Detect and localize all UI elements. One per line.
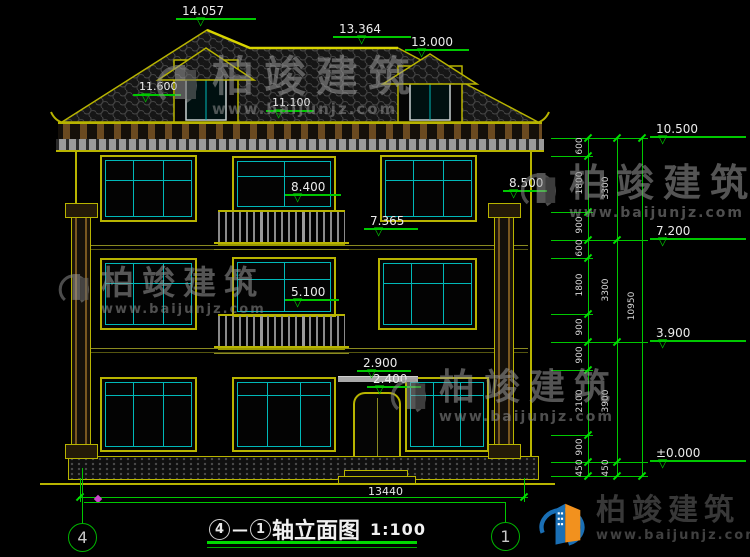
watermark-logo-icon	[520, 164, 564, 212]
window-3f-left	[100, 155, 197, 222]
axis-line-1	[505, 502, 506, 522]
watermark-lower-right: 柏竣建筑 www.baijunjz.com	[390, 370, 619, 424]
cornice-dentil-band	[56, 139, 544, 152]
balcony-railing-2f	[218, 314, 345, 350]
level-right-3900: 3.900 ▽	[650, 326, 746, 342]
dim-seg: 450	[574, 448, 586, 488]
dim-floor: 450	[600, 448, 612, 488]
level-ridge: 14.057 ▽	[176, 4, 256, 20]
balcony-railing-3f	[218, 210, 345, 246]
width-dim-text: 13440	[368, 485, 403, 498]
title-axis-start: 4	[209, 519, 230, 540]
window-1f-center	[232, 377, 336, 452]
level-right-7200: 7.200 ▽	[650, 224, 746, 240]
axis-line-4	[82, 468, 83, 523]
pilaster-left	[71, 216, 91, 446]
brand-logo-icon	[534, 496, 590, 548]
watermark-left: 柏竣建筑 www.baijunjz.com	[58, 266, 266, 316]
level-right-0000: ±0.000 ▽	[650, 446, 746, 462]
level-balcony3: 8.400 ▽	[285, 180, 341, 196]
title-underline-thick	[207, 541, 417, 544]
dim-seg: 600	[574, 126, 586, 166]
title-scale: 1:100	[370, 520, 426, 539]
ground-line	[40, 483, 555, 485]
pilaster-right-base	[488, 444, 521, 459]
dim-floor: 3300	[600, 270, 612, 310]
dim-total: 10950	[626, 286, 638, 326]
watermark-logo-icon	[156, 56, 206, 108]
dim-seg: 600	[574, 228, 586, 268]
pilaster-left-base	[65, 444, 98, 459]
pilaster-right-capital	[488, 203, 521, 218]
axis-ref-line	[84, 502, 505, 503]
level-balcony2: 5.100 ▽	[285, 285, 339, 301]
watermark-logo-icon	[390, 370, 434, 418]
balcony-slab-2f	[214, 346, 349, 354]
title-axis-end: 1	[250, 519, 271, 540]
watermark-right: 柏竣建筑 www.baijunjz.com	[520, 164, 750, 220]
watermark-logo-icon	[58, 266, 96, 308]
dim-seg: 1800	[574, 265, 586, 305]
brand-logo: 柏竣建筑 www.baijunjz.com	[534, 496, 750, 548]
pilaster-left-capital	[65, 203, 98, 218]
brand-name: 柏竣建筑	[596, 493, 740, 528]
window-3f-right	[380, 155, 477, 222]
window-1f-left	[100, 377, 197, 452]
title-underline-thin	[207, 547, 417, 548]
brand-url: www.baijunjz.com	[596, 529, 750, 542]
level-dormer: 13.000 ▽	[405, 35, 469, 51]
level-right-10500: 10.500 ▽	[650, 122, 746, 138]
level-band3: 7.365 ▽	[364, 214, 418, 230]
axis-circle-4: 4	[68, 523, 97, 552]
window-2f-right	[378, 258, 477, 330]
level-ridge-rear: 13.364 ▽	[333, 22, 411, 38]
balcony-slab-3f	[214, 242, 349, 250]
elevation-drawing: 14.057 ▽ 13.364 ▽ 13.000 ▽ 11.600 ▽ 11.1…	[0, 0, 750, 557]
axis-circle-1: 1	[491, 522, 520, 551]
width-dim-line	[78, 497, 528, 498]
plinth-base	[68, 456, 539, 480]
watermark-roof: 柏竣建筑 www.baijunjz.com	[156, 56, 420, 117]
